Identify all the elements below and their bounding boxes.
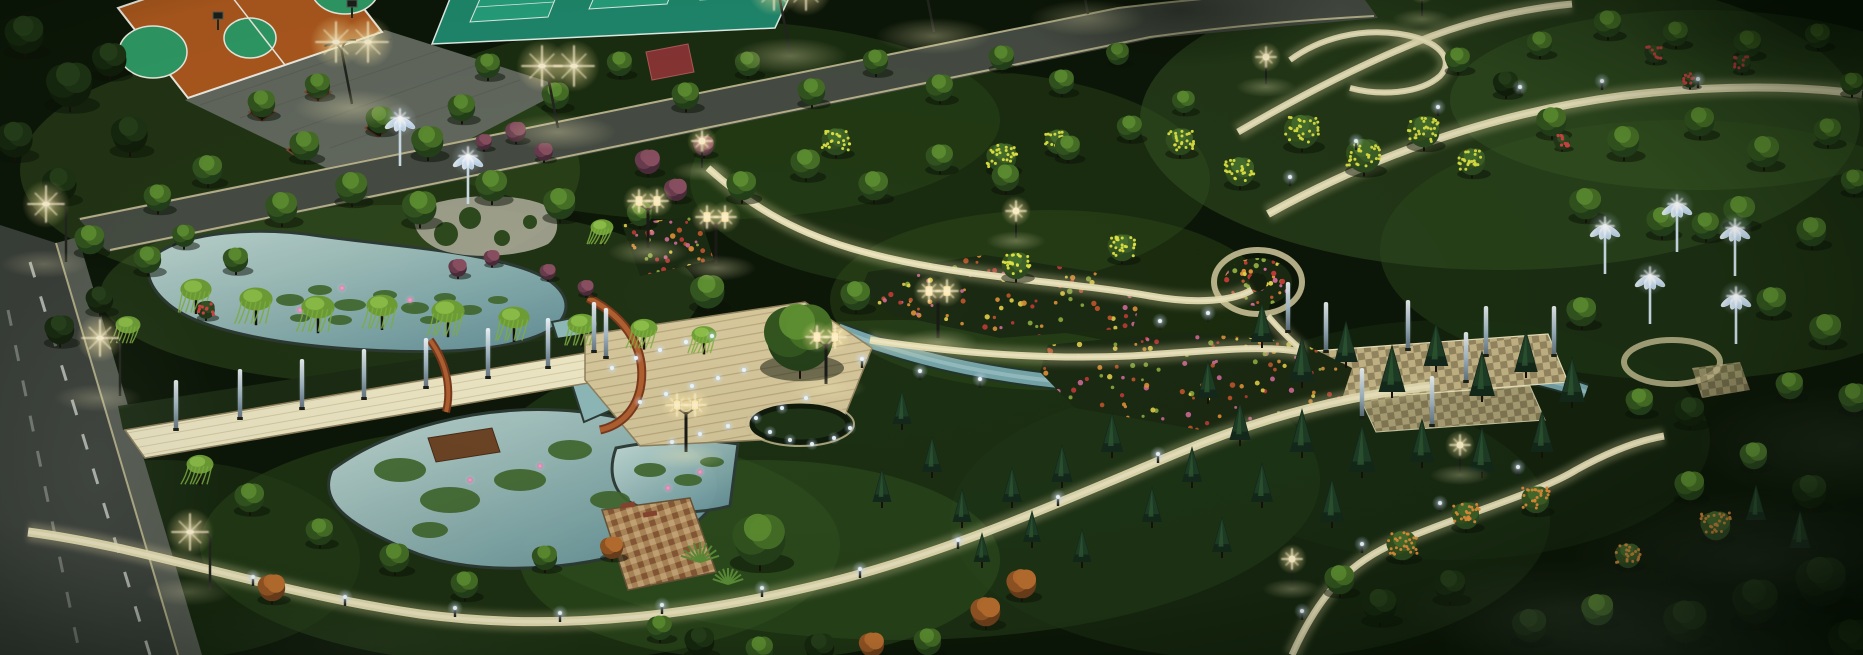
park-night-rendering [0, 0, 1863, 655]
atmosphere [0, 0, 1863, 655]
scene-canvas [0, 0, 1863, 655]
